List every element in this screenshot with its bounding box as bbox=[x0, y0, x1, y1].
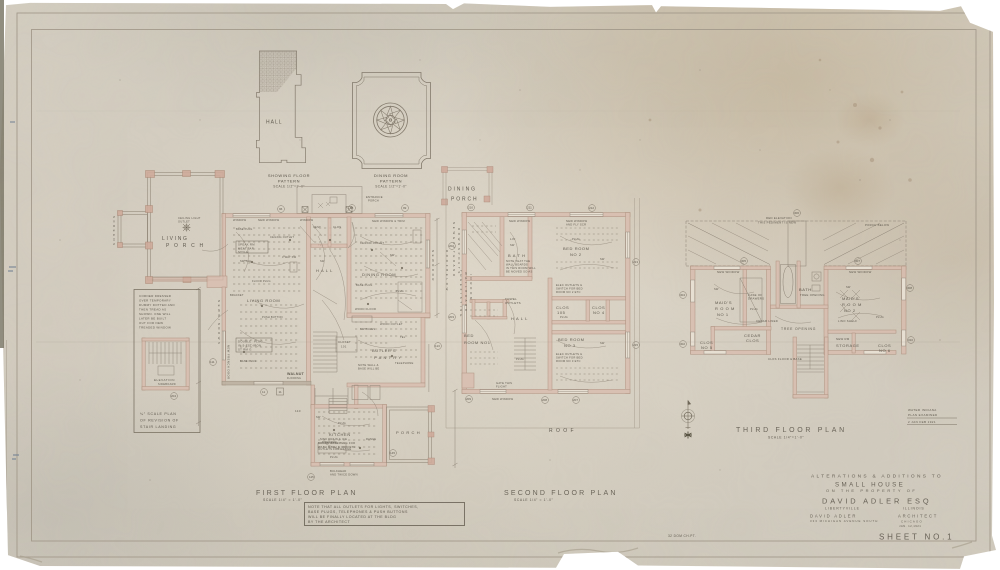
svg-text:307: 307 bbox=[855, 259, 860, 263]
svg-text:PLUG: PLUG bbox=[572, 237, 580, 241]
svg-text:NEW WINDOW & TRIM: NEW WINDOW & TRIM bbox=[372, 219, 405, 223]
svg-text:210: 210 bbox=[468, 206, 473, 210]
svg-text:P O R C H: P O R C H bbox=[396, 430, 420, 435]
svg-text:DRAWERS: DRAWERS bbox=[748, 297, 764, 301]
svg-text:WATER INDIANA: WATER INDIANA bbox=[908, 408, 937, 412]
svg-text:I N R O O M: I N R O O M bbox=[469, 274, 473, 300]
svg-text:WALNUT: WALNUT bbox=[287, 372, 305, 376]
svg-text:NO 2: NO 2 bbox=[570, 252, 582, 257]
svg-text:ROOM NO1: ROOM NO1 bbox=[464, 340, 491, 345]
svg-text:ELEC OUTLETS &: ELEC OUTLETS & bbox=[556, 352, 582, 356]
svg-text:SWITCH FOR BED: SWITCH FOR BED bbox=[556, 287, 583, 291]
svg-text:BUTLER’S: BUTLER’S bbox=[372, 348, 396, 353]
svg-text:209: 209 bbox=[466, 397, 471, 401]
svg-text:SWITCH: SWITCH bbox=[240, 259, 251, 263]
svg-text:NOTE WALL &: NOTE WALL & bbox=[358, 363, 379, 367]
svg-text:OF REVISION OF: OF REVISION OF bbox=[140, 419, 179, 423]
svg-text:SHEET NO.1: SHEET NO.1 bbox=[879, 533, 954, 542]
svg-text:NO 5: NO 5 bbox=[701, 345, 713, 350]
svg-text:CEILING OUTLET: CEILING OUTLET bbox=[270, 235, 294, 239]
svg-text:BED: BED bbox=[464, 333, 474, 338]
svg-text:SW: SW bbox=[600, 257, 605, 261]
svg-text:ON THE PROPERTY OF: ON THE PROPERTY OF bbox=[826, 488, 917, 493]
svg-text:PLUG: PLUG bbox=[560, 315, 568, 319]
svg-text:WOOD OUTLET: WOOD OUTLET bbox=[380, 322, 403, 326]
svg-text:THIRD FLOOR PLAN: THIRD FLOOR PLAN bbox=[736, 427, 847, 434]
svg-text:SIDEBOARD: SIDEBOARD bbox=[158, 382, 176, 386]
svg-text:DUMMY DOTTED AND: DUMMY DOTTED AND bbox=[139, 303, 175, 307]
svg-text:SCALE 1/4”=1’-0”: SCALE 1/4”=1’-0” bbox=[768, 436, 804, 440]
svg-text:ELEC OUTLETS &: ELEC OUTLETS & bbox=[556, 283, 582, 287]
svg-text:N E W G U T T E R A N D: N E W G U T T E R A N D bbox=[452, 222, 456, 277]
svg-text:310: 310 bbox=[908, 338, 913, 342]
svg-text:BE MOVED SO AS: BE MOVED SO AS bbox=[506, 270, 533, 274]
svg-text:110: 110 bbox=[295, 409, 301, 413]
svg-text:BOILER BASE PLUG FOR: BOILER BASE PLUG FOR bbox=[318, 441, 355, 445]
svg-text:2 JAN FEB 1921: 2 JAN FEB 1921 bbox=[908, 420, 936, 424]
svg-text:NEW WINDOW: NEW WINDOW bbox=[717, 270, 740, 274]
svg-text:NO 2: NO 2 bbox=[844, 308, 856, 313]
svg-text:96: 96 bbox=[279, 207, 283, 211]
svg-text:SW: SW bbox=[390, 253, 395, 257]
svg-text:N E W D O O R: N E W D O O R bbox=[431, 250, 435, 281]
svg-text:OVER TEMPORARY: OVER TEMPORARY bbox=[139, 299, 171, 303]
svg-text:306: 306 bbox=[794, 211, 799, 215]
svg-text:AND TWICE DOWN: AND TWICE DOWN bbox=[330, 473, 358, 477]
svg-text:NEW RM: NEW RM bbox=[836, 337, 850, 341]
svg-text:IN THIS ROOM WILL: IN THIS ROOM WILL bbox=[506, 266, 536, 270]
svg-text:STORAGE: STORAGE bbox=[836, 343, 860, 348]
svg-text:PLAN EXAMINED: PLAN EXAMINED bbox=[908, 413, 938, 417]
svg-text:WINDOW: WINDOW bbox=[300, 218, 314, 222]
svg-text:JAN. 12,1921: JAN. 12,1921 bbox=[899, 524, 921, 528]
svg-text:SECOND FLOOR PLAN: SECOND FLOOR PLAN bbox=[504, 490, 618, 497]
svg-text:111: 111 bbox=[210, 360, 215, 364]
svg-text:308: 308 bbox=[907, 286, 912, 290]
svg-text:SWITCHES: SWITCHES bbox=[360, 327, 375, 331]
svg-text:113: 113 bbox=[435, 344, 440, 348]
svg-text:NO 1: NO 1 bbox=[717, 312, 729, 317]
svg-text:211: 211 bbox=[527, 206, 532, 210]
svg-text:R O O M: R O O M bbox=[842, 302, 862, 307]
svg-text:BASE PLUG: BASE PLUG bbox=[356, 283, 373, 287]
svg-text:TREE OPENING: TREE OPENING bbox=[800, 293, 825, 297]
svg-text:NO 4: NO 4 bbox=[593, 310, 605, 315]
svg-text:305: 305 bbox=[741, 259, 746, 263]
svg-text:CLOS FLOOR & BASE: CLOS FLOOR & BASE bbox=[768, 357, 802, 361]
svg-text:W A L L B O A R D: W A L L B O A R D bbox=[464, 272, 468, 312]
svg-text:THIS PEDIMENT IS NEW: THIS PEDIMENT IS NEW bbox=[758, 221, 796, 225]
svg-text:212: 212 bbox=[589, 206, 594, 210]
svg-text:TEL: TEL bbox=[400, 335, 406, 339]
svg-text:P A N T R Y: P A N T R Y bbox=[374, 355, 402, 360]
svg-text:SWITCH FOR BED: SWITCH FOR BED bbox=[556, 356, 583, 360]
svg-text:CEILING LIGHT: CEILING LIGHT bbox=[178, 216, 201, 220]
svg-text:LIBERTYVILLE: LIBERTYVILLE bbox=[825, 507, 860, 511]
svg-text:BED ROOM: BED ROOM bbox=[558, 337, 585, 342]
svg-text:NEW WINDOW: NEW WINDOW bbox=[492, 397, 514, 401]
svg-text:FLOORING: FLOORING bbox=[287, 377, 301, 380]
svg-text:208: 208 bbox=[542, 398, 547, 402]
svg-text:PLUG: PLUG bbox=[516, 357, 524, 361]
svg-text:3 WAY SW: 3 WAY SW bbox=[282, 255, 297, 259]
svg-text:ALTERATIONS & ADDITIONS TO: ALTERATIONS & ADDITIONS TO bbox=[811, 474, 943, 480]
svg-text:BASE PLUGS, TELEPHONES & PUSH: BASE PLUGS, TELEPHONES & PUSH BUTTONS bbox=[308, 510, 408, 514]
svg-text:PATTERN: PATTERN bbox=[278, 179, 300, 184]
svg-text:S C R E E N S: S C R E E N S bbox=[112, 216, 116, 246]
svg-text:LATER BE BUILT: LATER BE BUILT bbox=[139, 317, 166, 321]
svg-text:FLOOR PLUG: FLOOR PLUG bbox=[252, 279, 271, 283]
svg-text:ENTRANCE: ENTRANCE bbox=[366, 195, 383, 199]
svg-text:MAID’S: MAID’S bbox=[715, 300, 732, 305]
svg-text:CLOS: CLOS bbox=[333, 225, 341, 229]
svg-text:BASE PLUG: BASE PLUG bbox=[240, 359, 257, 363]
svg-text:KITCHEN: KITCHEN bbox=[329, 432, 351, 437]
svg-text:DAVID ADLER ESQ: DAVID ADLER ESQ bbox=[822, 497, 932, 506]
svg-text:LIN: LIN bbox=[510, 237, 516, 241]
svg-text:H A L L: H A L L bbox=[316, 268, 333, 273]
svg-text:SW: SW bbox=[846, 285, 851, 289]
svg-text:OUTLET: OUTLET bbox=[178, 219, 190, 223]
svg-text:SW: SW bbox=[714, 287, 719, 291]
svg-text:ST RM G: ST RM G bbox=[238, 348, 252, 352]
svg-text:GATE THIS: GATE THIS bbox=[496, 381, 512, 385]
svg-text:FLIGHT: FLIGHT bbox=[496, 385, 507, 389]
svg-text:BASE PLUG: BASE PLUG bbox=[236, 227, 253, 231]
svg-text:WINDOW: WINDOW bbox=[233, 218, 247, 222]
svg-text:R O O F B E L O W: R O O F B E L O W bbox=[445, 250, 449, 291]
svg-text:32 DOM CH.PT.: 32 DOM CH.PT. bbox=[668, 534, 696, 538]
svg-text:TREADED WINDOW: TREADED WINDOW bbox=[139, 326, 171, 330]
svg-text:H A L L: H A L L bbox=[511, 316, 528, 321]
svg-text:DINING ROOM: DINING ROOM bbox=[374, 173, 408, 178]
svg-text:BATH: BATH bbox=[799, 287, 812, 292]
svg-text:STYLE: STYLE bbox=[238, 250, 248, 254]
svg-text:PORCH: PORCH bbox=[451, 197, 479, 203]
svg-text:304: 304 bbox=[680, 293, 685, 297]
svg-text:ROOM NO 2 ETC: ROOM NO 2 ETC bbox=[556, 290, 581, 294]
svg-text:ARCHITECT: ARCHITECT bbox=[898, 514, 938, 519]
svg-text:RANGE: RANGE bbox=[366, 437, 376, 441]
svg-text:SW: SW bbox=[600, 341, 605, 345]
svg-text:BY THE ARCHITECT: BY THE ARCHITECT bbox=[308, 520, 351, 524]
svg-text:SINK DRAIN & ICE: SINK DRAIN & ICE bbox=[320, 437, 347, 441]
svg-text:NEW WINDOW: NEW WINDOW bbox=[849, 270, 872, 274]
svg-text:99: 99 bbox=[403, 206, 407, 210]
svg-text:SHOWING FLOOR: SHOWING FLOOR bbox=[268, 173, 310, 178]
svg-text:HALL: HALL bbox=[266, 120, 283, 126]
svg-text:ILLINOIS: ILLINOIS bbox=[903, 507, 925, 511]
svg-text:N E W W I N D O W S: N E W W I N D O W S bbox=[217, 300, 221, 345]
svg-text:SCALE 1/4” = 1’-0”: SCALE 1/4” = 1’-0” bbox=[263, 498, 302, 502]
svg-text:SW: SW bbox=[316, 415, 321, 419]
svg-text:WILL BE FINALLY LOCATED AT THE: WILL BE FINALLY LOCATED AT THE BLDG bbox=[308, 515, 396, 519]
svg-text:NEW WINDOW: NEW WINDOW bbox=[509, 219, 531, 223]
svg-text:11: 11 bbox=[262, 390, 265, 394]
svg-text:BRACKET: BRACKET bbox=[230, 293, 244, 297]
svg-text:SCALE 1/4” = 1’-0”: SCALE 1/4” = 1’-0” bbox=[514, 498, 553, 502]
svg-text:BASE WILL BE: BASE WILL BE bbox=[358, 367, 379, 371]
svg-text:CORNER DRESSER: CORNER DRESSER bbox=[139, 294, 171, 298]
svg-text:¼″ SCALE PLAN: ¼″ SCALE PLAN bbox=[140, 412, 177, 416]
svg-text:333 MICHIGAN AVENUE SOUTH: 333 MICHIGAN AVENUE SOUTH bbox=[810, 519, 878, 523]
svg-text:ROOM NO 3 ETC: ROOM NO 3 ETC bbox=[556, 359, 581, 363]
svg-text:TREE OPENING: TREE OPENING bbox=[781, 327, 816, 331]
svg-text:NO 6: NO 6 bbox=[879, 348, 891, 353]
svg-text:101: 101 bbox=[341, 345, 347, 349]
svg-text:THEN TREAD AS: THEN TREAD AS bbox=[139, 308, 166, 312]
svg-text:NEW WINDOW: NEW WINDOW bbox=[258, 218, 280, 222]
svg-text:ELEVATION: ELEVATION bbox=[154, 378, 175, 382]
svg-text:TELEPHONE: TELEPHONE bbox=[395, 361, 414, 365]
svg-text:PORCH BELOW: PORCH BELOW bbox=[865, 223, 889, 227]
svg-text:302: 302 bbox=[680, 342, 685, 346]
svg-text:204: 204 bbox=[171, 394, 176, 398]
svg-text:NOTE THAT THE: NOTE THAT THE bbox=[506, 259, 530, 263]
svg-text:11: 11 bbox=[279, 390, 282, 394]
svg-text:SCALE 1/2”=1’-0”: SCALE 1/2”=1’-0” bbox=[375, 185, 406, 189]
svg-text:105: 105 bbox=[557, 310, 566, 315]
svg-text:WOOD FLOOR: WOOD FLOOR bbox=[355, 307, 376, 311]
svg-text:PUSH BUTTON: PUSH BUTTON bbox=[262, 315, 283, 319]
svg-text:SW: SW bbox=[510, 243, 515, 247]
svg-text:LIVING: LIVING bbox=[162, 236, 189, 242]
svg-text:DINING: DINING bbox=[448, 187, 477, 193]
svg-text:203: 203 bbox=[449, 315, 454, 319]
svg-text:D O W N S P O U T S: D O W N S P O U T S bbox=[457, 228, 461, 274]
svg-text:RED ELEVATION: RED ELEVATION bbox=[766, 216, 792, 220]
svg-text:BED ROOM: BED ROOM bbox=[563, 246, 590, 251]
svg-text:AND FLY SCR: AND FLY SCR bbox=[566, 222, 586, 226]
svg-text:T H E E X I S T I N G: T H E E X I S T I N G bbox=[459, 270, 463, 317]
svg-text:CHICAGO: CHICAGO bbox=[901, 520, 923, 524]
svg-text:WALL BOARDS: WALL BOARDS bbox=[506, 263, 528, 267]
svg-text:OUT FOR NEW: OUT FOR NEW bbox=[139, 321, 163, 325]
svg-text:215: 215 bbox=[633, 343, 638, 347]
svg-text:207: 207 bbox=[573, 398, 578, 402]
svg-text:LIVING ROOM: LIVING ROOM bbox=[247, 298, 280, 303]
svg-text:PATTERN: PATTERN bbox=[380, 179, 402, 184]
svg-text:PLUG: PLUG bbox=[396, 289, 404, 293]
svg-text:R O O M: R O O M bbox=[715, 306, 735, 311]
svg-text:FIRST FLOOR PLAN: FIRST FLOOR PLAN bbox=[256, 490, 358, 497]
svg-text:DAVID ADLER: DAVID ADLER bbox=[810, 514, 857, 519]
svg-text:NEW WINDOW: NEW WINDOW bbox=[566, 219, 588, 223]
svg-text:213: 213 bbox=[633, 260, 638, 264]
svg-text:PLUG: PLUG bbox=[330, 455, 338, 459]
svg-text:LINO SHELF: LINO SHELF bbox=[838, 319, 857, 323]
svg-text:STAIR LANDING: STAIR LANDING bbox=[140, 425, 176, 429]
svg-text:R O O F: R O O F bbox=[549, 428, 575, 434]
svg-text:MAID’S: MAID’S bbox=[842, 296, 859, 301]
svg-text:PLUG: PLUG bbox=[750, 307, 758, 311]
svg-text:PORCH: PORCH bbox=[368, 199, 379, 203]
svg-text:BULKHEAD: BULKHEAD bbox=[330, 469, 347, 473]
svg-text:NOTE THAT ALL OUTLETS FOR LIGH: NOTE THAT ALL OUTLETS FOR LIGHTS, SWITCH… bbox=[308, 505, 419, 509]
svg-text:SHOWN. ONE WILL: SHOWN. ONE WILL bbox=[139, 312, 171, 316]
svg-text:145: 145 bbox=[390, 451, 395, 455]
svg-text:P O R C H: P O R C H bbox=[166, 243, 205, 249]
svg-text:115: 115 bbox=[309, 475, 314, 479]
